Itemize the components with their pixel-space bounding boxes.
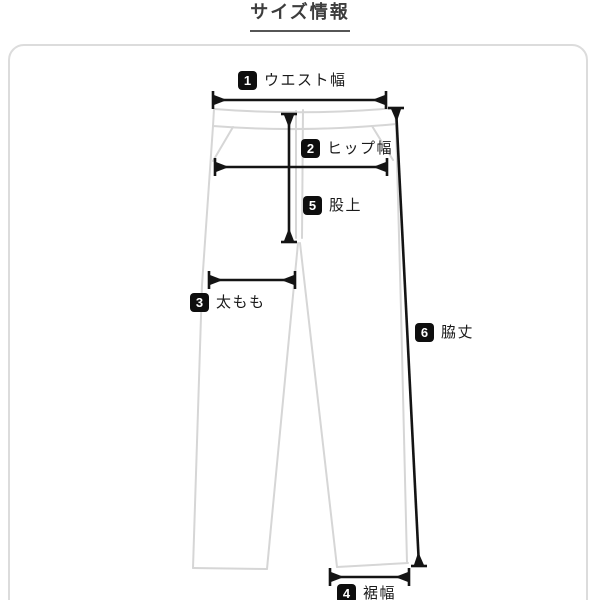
- hip-width-arrow: [215, 158, 387, 176]
- right-outer-seam: [396, 124, 407, 563]
- label-number-badge: 6: [415, 323, 434, 342]
- label-text: 脇丈: [441, 323, 474, 342]
- label-rise-length: 5 股上: [303, 196, 362, 215]
- label-thigh-width: 3 太もも: [190, 293, 266, 312]
- label-text: ヒップ幅: [327, 139, 393, 158]
- left-inner-seam: [267, 243, 298, 569]
- right-hem-line: [337, 563, 408, 567]
- left-outer-seam: [193, 126, 213, 568]
- pants-size-diagram: [0, 0, 600, 600]
- label-number-badge: 3: [190, 293, 209, 312]
- label-text: ウエスト幅: [264, 71, 347, 90]
- waistband-bottom-line: [213, 124, 396, 129]
- pants-outline-drawing: [193, 108, 408, 569]
- waistband-top-line: [214, 108, 395, 112]
- size-info-page: サイズ情報: [0, 0, 600, 600]
- thigh-width-arrow: [209, 271, 295, 289]
- waist-width-arrow: [213, 91, 386, 109]
- left-pocket-line: [213, 127, 233, 161]
- label-hip-width: 2 ヒップ幅: [301, 139, 393, 158]
- waistband-left-edge: [213, 109, 214, 126]
- label-hem-width: 4 裾幅: [337, 584, 396, 600]
- fly-right-line: [302, 110, 303, 238]
- left-hem-line: [193, 568, 267, 569]
- label-side-length: 6 脇丈: [415, 323, 474, 342]
- label-number-badge: 1: [238, 71, 257, 90]
- rise-length-arrow: [281, 114, 297, 242]
- label-text: 股上: [329, 196, 362, 215]
- label-text: 裾幅: [363, 584, 396, 600]
- right-inner-seam: [300, 243, 337, 567]
- label-waist-width: 1 ウエスト幅: [238, 71, 347, 90]
- label-text: 太もも: [216, 293, 266, 312]
- label-number-badge: 5: [303, 196, 322, 215]
- label-number-badge: 2: [301, 139, 320, 158]
- label-number-badge: 4: [337, 584, 356, 600]
